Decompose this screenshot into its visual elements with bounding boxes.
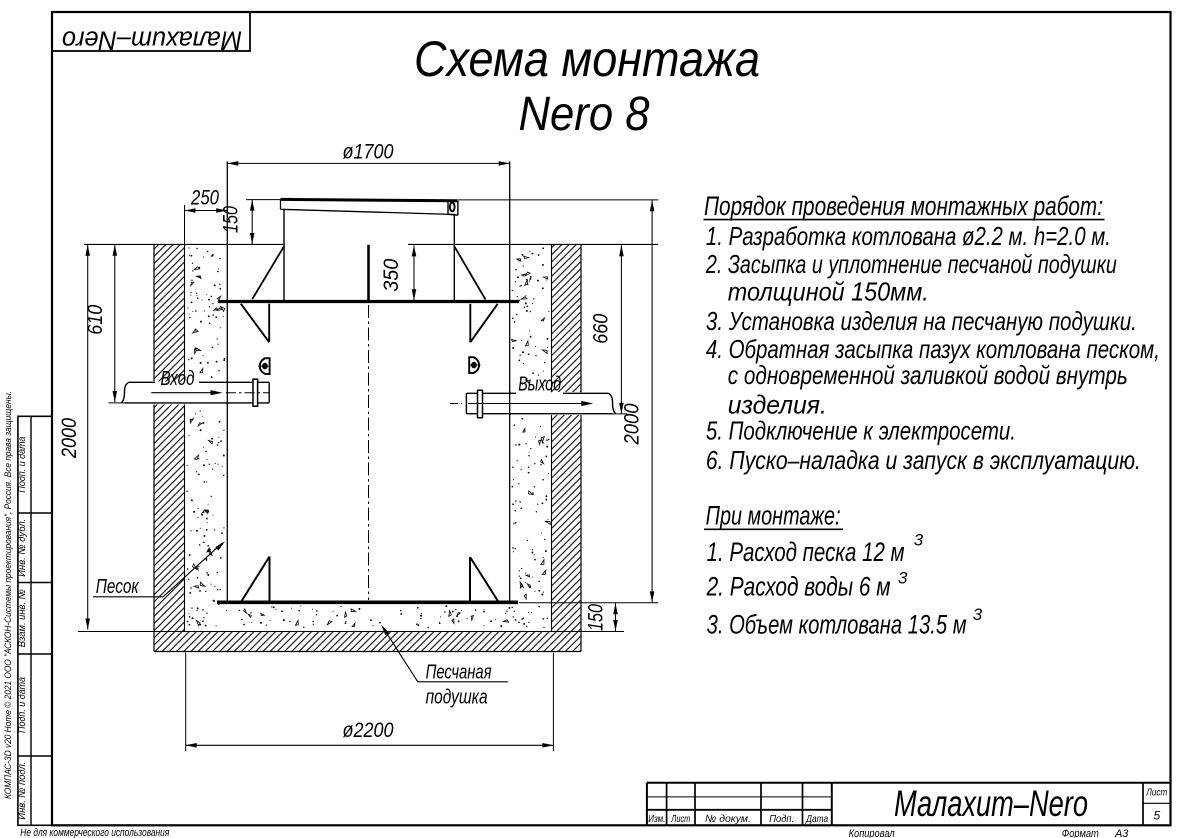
svg-text:2000: 2000 xyxy=(58,418,81,459)
svg-text:Nero 8: Nero 8 xyxy=(519,88,650,141)
svg-text:Лист: Лист xyxy=(671,813,691,825)
svg-text:толщиной 150мм.: толщиной 150мм. xyxy=(728,277,929,307)
svg-text:1. Разработка котлована ø2.2 м: 1. Разработка котлована ø2.2 м. h=2.0 м. xyxy=(706,221,1111,251)
svg-text:2. Расход воды 6 м: 2. Расход воды 6 м xyxy=(706,572,891,602)
svg-text:№ докум.: № докум. xyxy=(705,813,751,825)
svg-text:Выход: Выход xyxy=(518,374,561,396)
svg-text:1. Расход песка 12 м: 1. Расход песка 12 м xyxy=(707,537,905,567)
svg-text:Подп.: Подп. xyxy=(769,813,794,825)
svg-text:Вход: Вход xyxy=(161,368,195,390)
svg-text:подушка: подушка xyxy=(426,687,488,709)
svg-text:Схема монтажа: Схема монтажа xyxy=(414,31,760,87)
svg-text:Изм.: Изм. xyxy=(648,813,665,825)
svg-text:5. Подключение к электросети.: 5. Подключение к электросети. xyxy=(706,416,1016,446)
svg-text:250: 250 xyxy=(190,187,219,210)
svg-text:Не для коммерческого использов: Не для коммерческого использования xyxy=(20,827,169,838)
svg-text:Подп. и дата: Подп. и дата xyxy=(16,436,28,492)
svg-text:5: 5 xyxy=(1153,809,1160,823)
svg-text:ø2200: ø2200 xyxy=(343,719,394,742)
svg-text:2. Засыпка и уплотнение песчан: 2. Засыпка и уплотнение песчаной подушки xyxy=(705,249,1117,279)
svg-text:6. Пуско–наладка и запуск в эк: 6. Пуско–наладка и запуск в эксплуатацию… xyxy=(706,445,1141,475)
svg-text:3. Объем котлована 13.5 м: 3. Объем котлована 13.5 м xyxy=(707,610,967,640)
svg-text:2000: 2000 xyxy=(621,403,644,445)
svg-text:Порядок проведения монтажных р: Порядок проведения монтажных работ: xyxy=(704,191,1103,221)
svg-text:150: 150 xyxy=(585,604,608,631)
svg-text:Инв. № подл.: Инв. № подл. xyxy=(16,762,28,820)
svg-text:ø1700: ø1700 xyxy=(343,141,394,164)
svg-text:Лист: Лист xyxy=(1146,787,1168,799)
svg-text:150: 150 xyxy=(220,206,243,233)
svg-text:3. Установка изделия на песчан: 3. Установка изделия на песчаную подушки… xyxy=(706,306,1137,336)
svg-text:Формат: Формат xyxy=(1062,828,1099,838)
svg-text:Малахит–Nero: Малахит–Nero xyxy=(62,26,242,56)
svg-text:3: 3 xyxy=(914,531,924,550)
svg-text:Песок: Песок xyxy=(96,576,140,598)
svg-text:с одновременной заливкой водой: с одновременной заливкой водой внутрь xyxy=(728,360,1128,390)
svg-text:А3: А3 xyxy=(1114,828,1129,838)
svg-text:Песчаная: Песчаная xyxy=(426,662,492,684)
svg-text:Дата: Дата xyxy=(805,813,828,825)
svg-text:Подп. и дата: Подп. и дата xyxy=(16,677,28,733)
svg-text:КОМПАС-3D v20 Home © 2021 ООО: КОМПАС-3D v20 Home © 2021 ООО "АСКОН-Сис… xyxy=(3,391,13,799)
svg-text:Взам. инв. №: Взам. инв. № xyxy=(16,589,28,647)
svg-text:660: 660 xyxy=(590,314,613,344)
svg-text:Инв. № дубл.: Инв. № дубл. xyxy=(16,519,28,577)
svg-text:350: 350 xyxy=(380,259,403,292)
svg-text:Копировал: Копировал xyxy=(849,828,895,838)
svg-text:Малахит–Nero: Малахит–Nero xyxy=(894,783,1088,824)
svg-text:3: 3 xyxy=(898,569,908,588)
svg-text:При монтаже:: При монтаже: xyxy=(706,501,841,531)
svg-text:3: 3 xyxy=(973,605,983,624)
